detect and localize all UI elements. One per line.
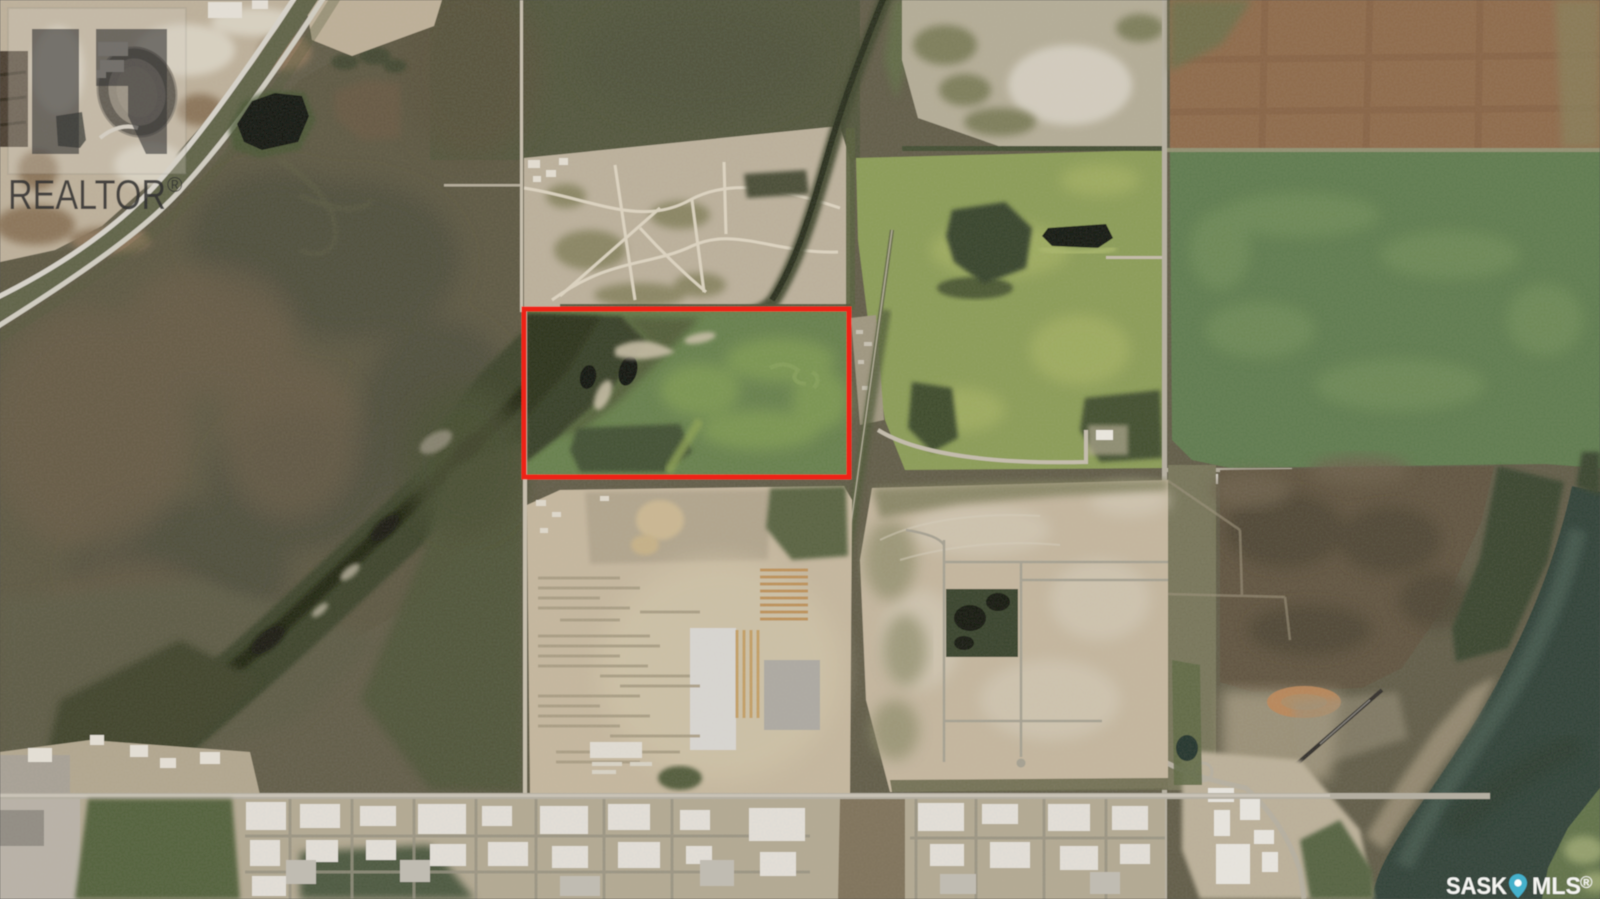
svg-text:REALTOR: REALTOR xyxy=(8,171,166,218)
svg-text:SASK: SASK xyxy=(1446,873,1508,899)
svg-text:®: ® xyxy=(1580,873,1593,892)
svg-text:®: ® xyxy=(167,174,183,197)
svg-text:MLS: MLS xyxy=(1532,873,1581,899)
